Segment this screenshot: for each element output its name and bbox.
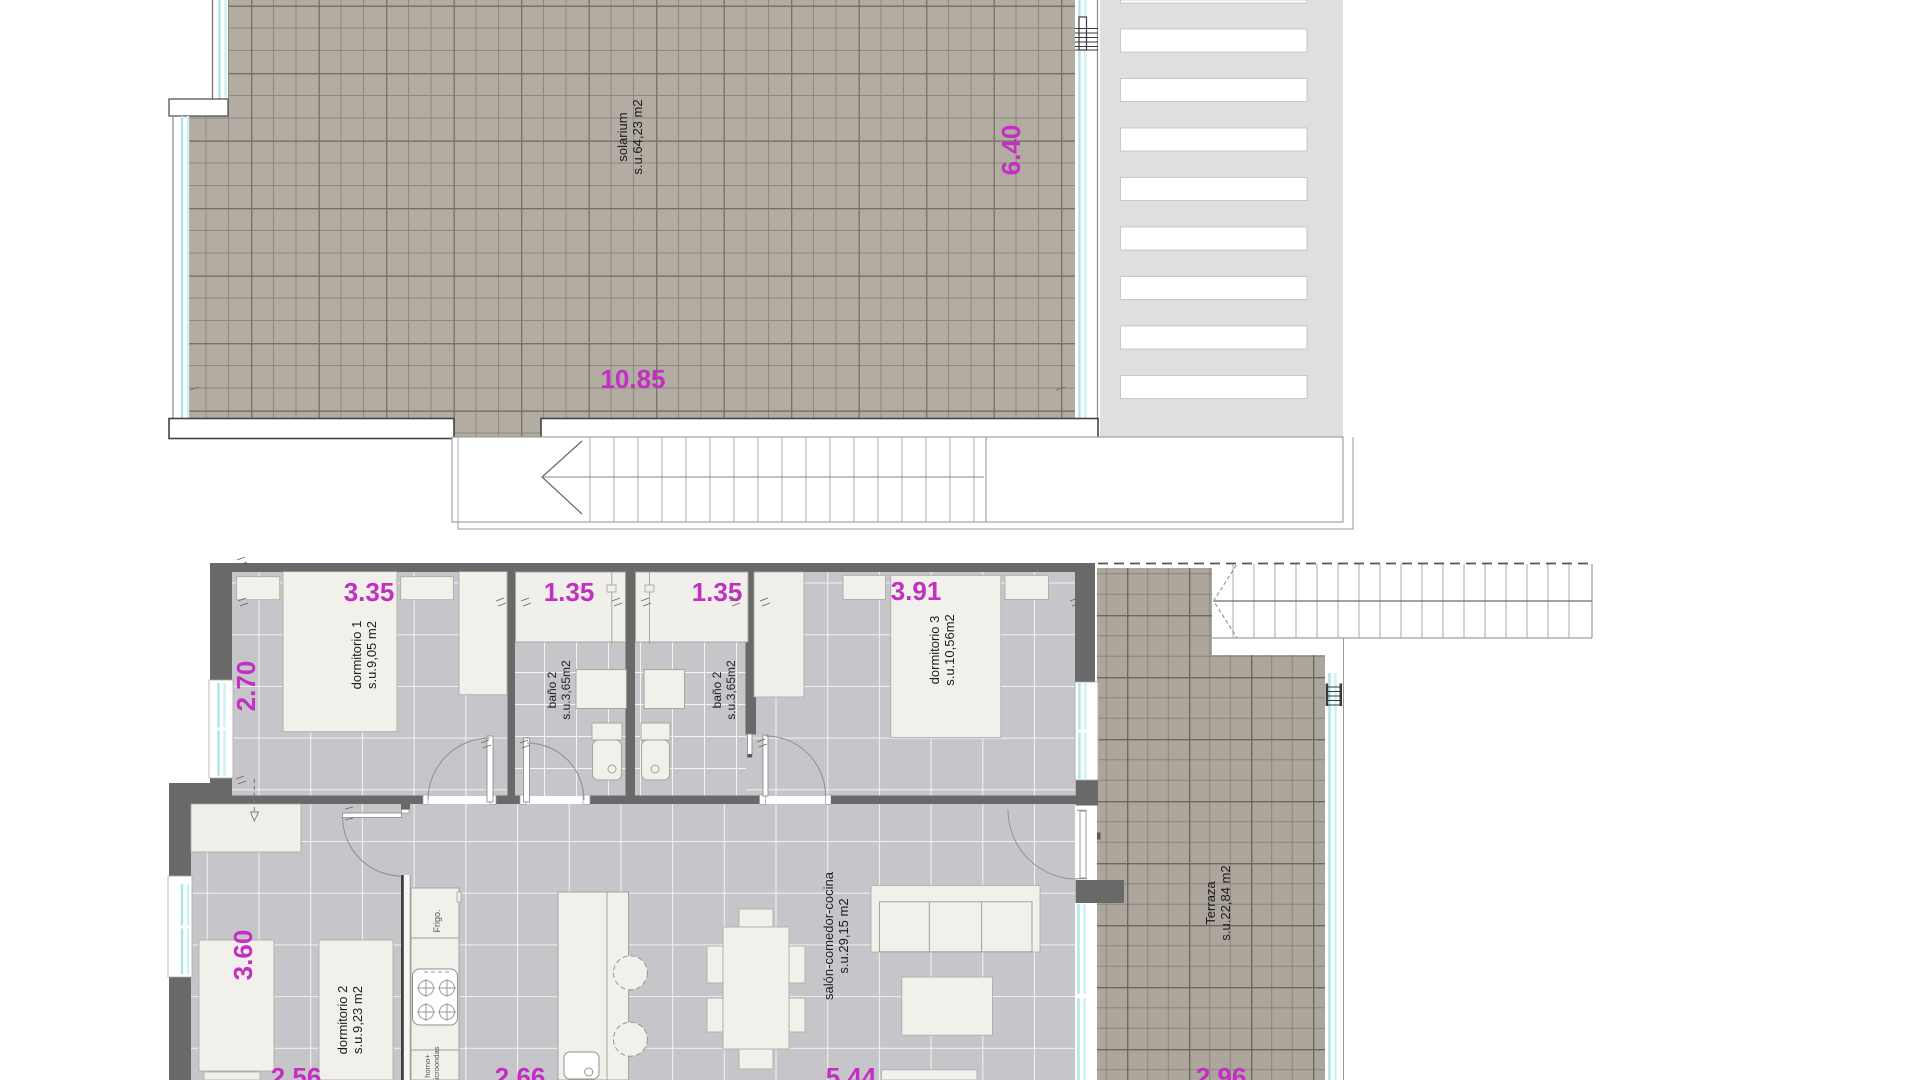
svg-text:salón-comedor-cocina: salón-comedor-cocina <box>821 871 836 1000</box>
svg-text:baño 2: baño 2 <box>545 671 559 708</box>
svg-text:Terraza: Terraza <box>1203 881 1218 925</box>
svg-text:s.u.10,56m2: s.u.10,56m2 <box>942 614 957 686</box>
svg-text:3.60: 3.60 <box>228 930 258 981</box>
svg-text:6.40: 6.40 <box>996 125 1026 176</box>
svg-text:s.u.22,84 m2: s.u.22,84 m2 <box>1218 865 1233 940</box>
svg-text:dormitorio 2: dormitorio 2 <box>335 986 350 1055</box>
svg-text:2.96: 2.96 <box>1196 1062 1247 1080</box>
svg-text:s.u.3,65m2: s.u.3,65m2 <box>559 660 573 720</box>
svg-text:s.u.3,65m2: s.u.3,65m2 <box>724 660 738 720</box>
svg-text:2.56: 2.56 <box>271 1062 322 1080</box>
svg-text:1.35: 1.35 <box>692 577 743 607</box>
svg-text:10.85: 10.85 <box>600 364 665 394</box>
svg-text:s.u.29,15 m2: s.u.29,15 m2 <box>836 898 851 973</box>
svg-text:1.35: 1.35 <box>544 577 595 607</box>
svg-text:horno+: horno+ <box>423 1054 432 1078</box>
svg-text:3.35: 3.35 <box>344 577 395 607</box>
svg-text:2.66: 2.66 <box>495 1062 546 1080</box>
svg-text:2.70: 2.70 <box>231 661 261 712</box>
svg-text:s.u.9,23 m2: s.u.9,23 m2 <box>350 986 365 1054</box>
svg-text:s.u.64,23 m2: s.u.64,23 m2 <box>630 99 645 174</box>
svg-text:baño 2: baño 2 <box>710 671 724 708</box>
svg-text:3.91: 3.91 <box>891 576 942 606</box>
svg-text:solarium: solarium <box>615 112 630 161</box>
svg-text:Frigo.: Frigo. <box>432 909 442 932</box>
svg-text:5.44: 5.44 <box>826 1062 877 1080</box>
svg-text:s.u.9,05 m2: s.u.9,05 m2 <box>364 621 379 689</box>
svg-text:dormitorio 3: dormitorio 3 <box>927 616 942 685</box>
svg-text:dormitorio 1: dormitorio 1 <box>349 621 364 690</box>
svg-text:microondas: microondas <box>432 1046 441 1080</box>
